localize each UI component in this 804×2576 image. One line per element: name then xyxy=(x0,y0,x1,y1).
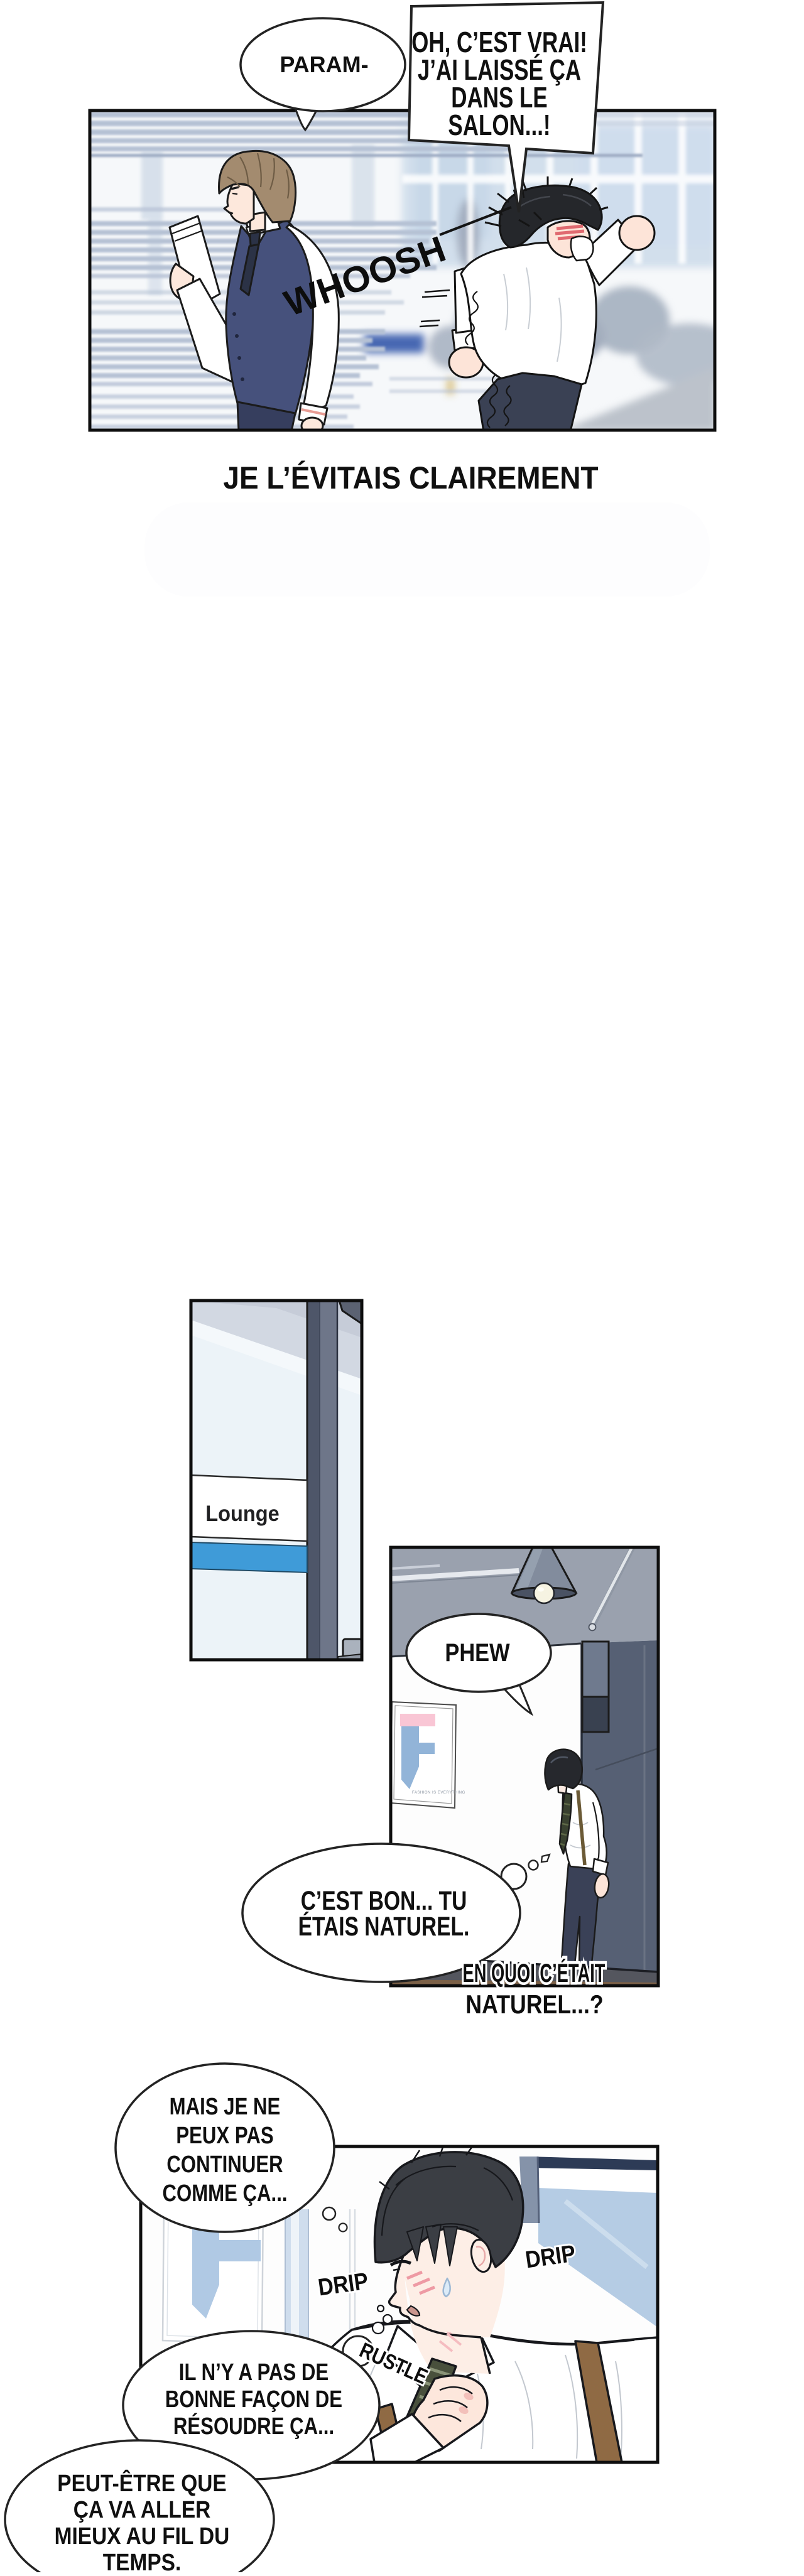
svg-text:EN QUOI C’ÉTAIT: EN QUOI C’ÉTAIT xyxy=(463,1958,606,1988)
svg-text:NATUREL...?: NATUREL...? xyxy=(465,1990,603,2019)
svg-text:FASHION IS EVERYTHING: FASHION IS EVERYTHING xyxy=(412,1791,465,1795)
